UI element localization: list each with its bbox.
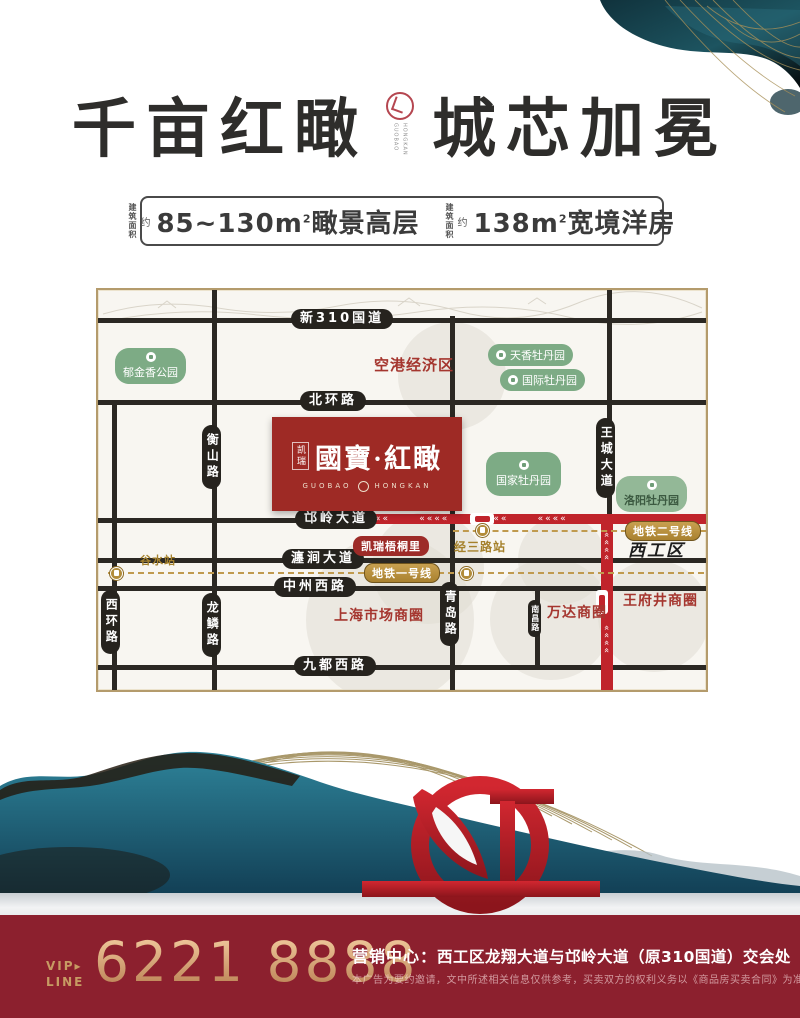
ink-mountain-decoration: [0, 690, 800, 895]
location-map: «««« «««« «««« «««« «««« «««« 谷水站 经三路站 地…: [96, 288, 708, 692]
zone-shanghai-market: 上海市场商圈: [334, 605, 424, 625]
project-seal-icon: [358, 481, 369, 492]
road-label: 北环路: [300, 391, 366, 411]
project-name: 國寶·紅瞰: [315, 437, 442, 476]
spec-prefix-line2: 面积: [128, 221, 136, 239]
road-label: 王城大道: [596, 418, 615, 498]
station-jingsanlu: 经三路站: [454, 538, 506, 555]
zone-wangfujing: 王府井商圈: [623, 590, 698, 610]
road-label: 九都西路: [294, 656, 376, 676]
metro-station-icon: [460, 567, 473, 580]
area-spec-box: 建筑 面积 约 85~130m2瞰景高层 建筑 面积 约 138m2宽境洋房: [140, 196, 664, 246]
vip-line-label: VIP▸ LINE: [46, 959, 84, 990]
spec-prefix-line1: 建筑: [445, 203, 453, 221]
project-latin-row: GUOBAO HONGKAN: [303, 481, 432, 492]
project-latin-right: HONGKAN: [375, 482, 432, 490]
mountain-sketch-decoration: [98, 290, 706, 338]
location-pin-icon: [647, 480, 657, 490]
spec-prefix-line2: 面积: [445, 221, 453, 239]
park-name: 天香牡丹园: [510, 347, 565, 363]
spec-prefix: 建筑 面积: [445, 203, 453, 240]
disclaimer-text: 本广告为要约邀请，文中所述相关信息仅供参考，买卖双方的权利义务以《商品房买卖合同…: [352, 971, 800, 986]
main-title-row: 千亩红瞰 GUOBAO HONGKAN 城芯加冕: [0, 78, 800, 170]
project-latin-left: GUOBAO: [303, 482, 352, 490]
spec-flat: 建筑 面积 约 138m2宽境洋房: [445, 203, 675, 240]
road-label: 西环路: [101, 590, 120, 654]
poi-kairui-wutongli: 凯瑞梧桐里: [353, 536, 429, 556]
poster: 千亩红瞰 GUOBAO HONGKAN 城芯加冕 建筑 面积 约 85~130m…: [0, 0, 800, 1018]
park-label: 国际牡丹园: [500, 369, 585, 391]
park-name: 郁金香公园: [123, 364, 178, 380]
brand-seal-icon: GUOBAO HONGKAN: [386, 92, 414, 156]
location-pin-icon: [519, 460, 529, 470]
park-label: 郁金香公园: [115, 348, 186, 384]
road-label: 南昌路: [528, 600, 541, 637]
location-pin-icon: [146, 352, 156, 362]
park-label: 国家牡丹园: [486, 452, 561, 496]
title-right: 城芯加冕: [432, 78, 728, 170]
park-label: 洛阳牡丹园: [616, 476, 687, 512]
spec-approx: 约: [457, 214, 467, 229]
reflective-floor-band: [0, 893, 800, 917]
project-marker: 凯瑞 國寶·紅瞰 GUOBAO HONGKAN: [272, 417, 462, 511]
metro-station-icon: [476, 524, 489, 537]
park-label: 天香牡丹园: [488, 344, 573, 366]
vip-label-line1: VIP▸: [46, 959, 84, 975]
project-brand: 凯瑞: [292, 442, 309, 470]
seal-letters-right: HONGKAN: [402, 123, 408, 156]
spec-value: 85~130m2瞰景高层: [156, 203, 419, 240]
zone-airport-economic: 空港经济区: [374, 354, 454, 375]
seal-letters-left: GUOBAO: [393, 123, 399, 156]
seal-circle-icon: [386, 92, 414, 120]
footer-bar: VIP▸ LINE 6221 8888 营销中心： 西工区龙翔大道与邙岭大道（原…: [0, 915, 800, 1018]
route-arrows-up: ««««: [601, 620, 611, 660]
seal-letters: GUOBAO HONGKAN: [393, 123, 408, 156]
zone-wanda: 万达商圈: [547, 602, 607, 622]
road-xin310: [98, 318, 706, 323]
red-logo-sculpture: [350, 755, 610, 915]
marketing-center-row: 营销中心： 西工区龙翔大道与邙岭大道（原310国道）交会处: [352, 943, 791, 967]
park-name: 国家牡丹园: [496, 472, 551, 488]
road-label: 龙鳞路: [202, 593, 221, 657]
road-zhongzhouxi: [98, 586, 706, 591]
road-beihuan: [98, 400, 706, 405]
road-label: 中州西路: [274, 577, 356, 597]
spec-prefix-line1: 建筑: [128, 203, 136, 221]
spec-highrise: 建筑 面积 约 85~130m2瞰景高层: [128, 203, 419, 240]
title-left: 千亩红瞰: [72, 78, 368, 170]
project-name-row: 凯瑞 國寶·紅瞰: [292, 437, 442, 476]
metro-station-icon: [110, 567, 123, 580]
metro-line1-badge: 地铁一号线: [364, 563, 440, 583]
vip-label-line2: LINE: [46, 975, 84, 991]
road-label: 青岛路: [440, 582, 459, 646]
station-gushui: 谷水站: [140, 552, 176, 568]
road-label: 邙岭大道: [295, 509, 377, 529]
location-pin-icon: [508, 375, 518, 385]
road-label: 新310国道: [291, 309, 393, 329]
park-name: 国际牡丹园: [522, 372, 577, 388]
route-arrows-left: «««« «««« «««« ««««: [360, 515, 568, 524]
park-name: 洛阳牡丹园: [624, 492, 679, 508]
spec-prefix: 建筑 面积: [128, 203, 136, 240]
district-xigong: 西工区: [628, 536, 685, 561]
zone-circle: [598, 560, 708, 672]
route-arrows-up: ««««: [601, 527, 611, 567]
location-pin-icon: [496, 350, 506, 360]
road-label: 瀍涧大道: [282, 549, 364, 569]
marketing-center-address: 西工区龙翔大道与邙岭大道（原310国道）交会处: [437, 945, 791, 967]
spec-value: 138m2宽境洋房: [473, 203, 675, 240]
spec-approx: 约: [140, 214, 150, 229]
road-label: 衡山路: [202, 425, 221, 489]
road-jiuduxi: [98, 665, 706, 670]
marketing-center-label: 营销中心：: [352, 943, 437, 967]
